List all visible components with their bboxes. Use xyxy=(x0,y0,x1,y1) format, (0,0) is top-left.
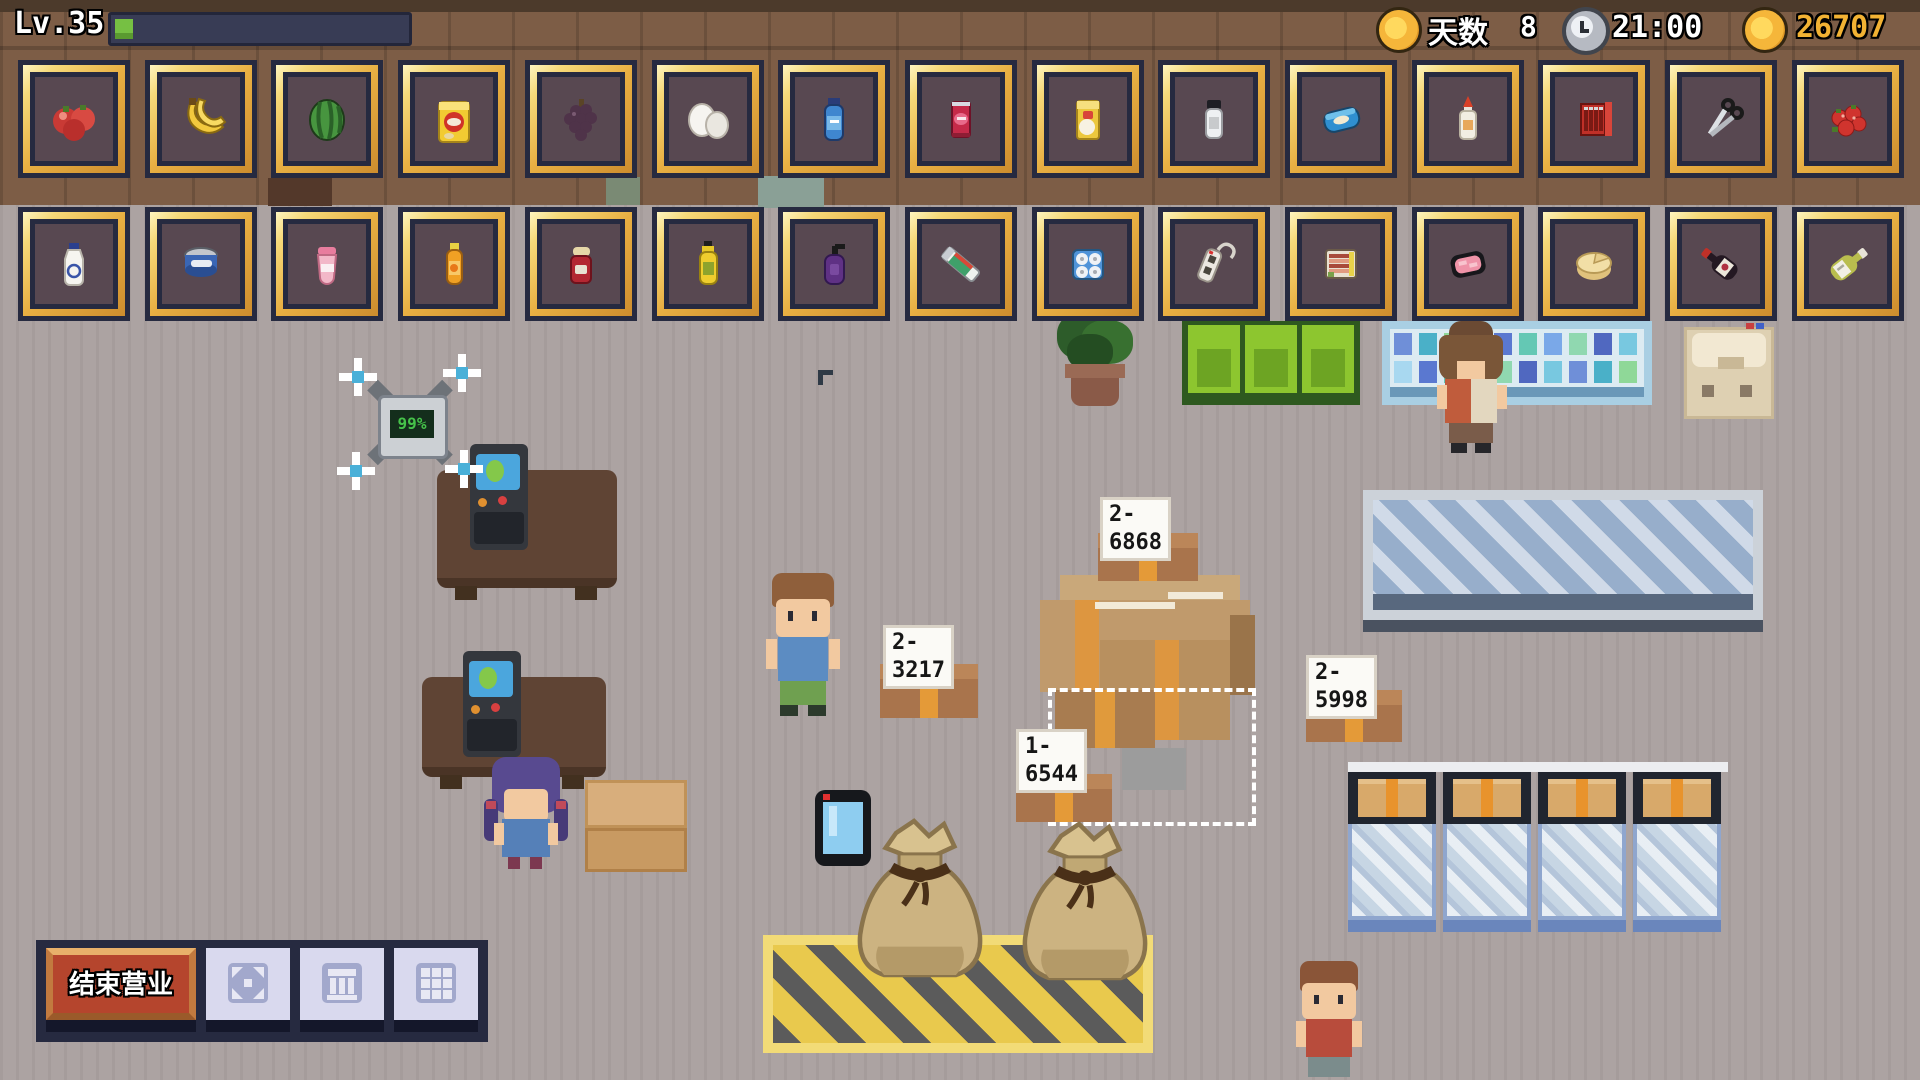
bacon-pack-icon xyxy=(1302,224,1380,304)
bank-button[interactable] xyxy=(300,948,384,1020)
phone-device[interactable] xyxy=(815,790,871,866)
potted-plant xyxy=(1051,312,1139,408)
slot-batteries[interactable] xyxy=(1538,60,1650,178)
xp-bar xyxy=(108,12,412,46)
toilet-paper-pack-icon xyxy=(1049,224,1127,304)
expand-button[interactable] xyxy=(206,948,290,1020)
shipment-box-label: 2-5998 xyxy=(1306,655,1377,719)
yogurt-cup-icon xyxy=(288,224,366,304)
money-bag[interactable] xyxy=(1010,818,1160,990)
cola-can-icon xyxy=(922,77,1000,161)
drone-propeller-icon xyxy=(445,450,483,488)
shipment-box-label: 2-3217 xyxy=(883,625,954,689)
wet-wipes-icon xyxy=(1302,77,1380,161)
display-counter-shadow xyxy=(1363,620,1763,632)
cash-register[interactable] xyxy=(455,645,529,763)
freezer-unit[interactable] xyxy=(1538,772,1626,932)
slot-cheese-wheel[interactable] xyxy=(1538,207,1650,321)
slot-bacon-pack[interactable] xyxy=(1285,207,1397,321)
milk-bottle-icon xyxy=(35,224,113,304)
power-strip-icon xyxy=(1175,224,1253,304)
batteries-icon xyxy=(1555,77,1633,161)
slot-shampoo[interactable] xyxy=(778,207,890,321)
cardboard-box[interactable] xyxy=(585,780,687,872)
freezer-unit[interactable] xyxy=(1348,772,1436,932)
slot-bananas[interactable] xyxy=(145,60,257,178)
slot-cola-can[interactable] xyxy=(905,60,1017,178)
money-value: 26707 xyxy=(1796,10,1886,45)
slot-toilet-paper-pack[interactable] xyxy=(1032,207,1144,321)
slot-white-wine-bottle[interactable] xyxy=(1792,207,1904,321)
freezer-unit[interactable] xyxy=(1633,772,1721,932)
scissors-icon xyxy=(1682,77,1760,161)
slot-wet-wipes[interactable] xyxy=(1285,60,1397,178)
shelf-decor xyxy=(606,177,640,205)
strawberries-icon xyxy=(1809,77,1887,161)
slot-jam-jar[interactable] xyxy=(525,207,637,321)
slot-power-strip[interactable] xyxy=(1158,207,1270,321)
slot-tomatoes[interactable] xyxy=(18,60,130,178)
freezer-unit[interactable] xyxy=(1443,772,1531,932)
action-toolbar: 结束营业 xyxy=(36,940,488,1042)
green-shelf[interactable] xyxy=(1182,321,1360,405)
shipment-box-label: 2-6868 xyxy=(1100,497,1171,561)
jam-jar-icon xyxy=(542,224,620,304)
slot-salt-shaker[interactable] xyxy=(1158,60,1270,178)
customer-boy xyxy=(766,573,840,725)
slot-yogurt-cup[interactable] xyxy=(271,207,383,321)
slot-orange-juice-bottle[interactable] xyxy=(398,207,510,321)
drone-propeller-icon xyxy=(337,452,375,490)
coin-icon xyxy=(1376,7,1422,53)
drone-propeller-icon xyxy=(339,358,377,396)
grid-icon xyxy=(410,957,462,1012)
game-viewport: 2-68682-32172-59981-6544 xyxy=(0,0,1920,1080)
drone-battery-screen: 99% xyxy=(390,410,434,438)
coin-icon xyxy=(1742,7,1788,53)
potato-chips-icon xyxy=(415,77,493,161)
cooking-oil-icon xyxy=(669,224,747,304)
freezer-top-strip xyxy=(1348,762,1728,772)
bank-icon xyxy=(316,957,368,1012)
cursor-icon xyxy=(818,370,834,386)
display-counter[interactable] xyxy=(1363,490,1763,620)
red-wine-bottle-icon xyxy=(1682,224,1760,304)
drone-propeller-icon xyxy=(443,354,481,392)
cheese-wheel-icon xyxy=(1555,224,1633,304)
time-value: 21:00 xyxy=(1612,10,1702,45)
eggs-icon xyxy=(669,77,747,161)
shampoo-icon xyxy=(795,224,873,304)
delivery-drone[interactable]: 99% xyxy=(345,362,475,486)
level-label: Lv.35 xyxy=(14,6,104,41)
slot-toothpaste[interactable] xyxy=(905,207,1017,321)
slot-strawberries[interactable] xyxy=(1792,60,1904,178)
day-value: 8 xyxy=(1520,10,1537,43)
grid-button[interactable] xyxy=(394,948,478,1020)
slot-scissors[interactable] xyxy=(1665,60,1777,178)
slot-red-wine-bottle[interactable] xyxy=(1665,207,1777,321)
bananas-icon xyxy=(162,77,240,161)
slot-flour-bag[interactable] xyxy=(1032,60,1144,178)
clock-icon xyxy=(1562,7,1610,55)
water-bottle-icon xyxy=(795,77,873,161)
wood-wall-seam xyxy=(0,46,1920,50)
slot-watermelon[interactable] xyxy=(271,60,383,178)
slot-eggs[interactable] xyxy=(652,60,764,178)
shipment-box-label: 1-6544 xyxy=(1016,729,1087,793)
slot-potato-chips[interactable] xyxy=(398,60,510,178)
slot-glue-bottle[interactable] xyxy=(1412,60,1524,178)
refrigerated-shelf[interactable] xyxy=(1382,321,1652,405)
white-wine-bottle-icon xyxy=(1809,224,1887,304)
tuna-can-icon xyxy=(162,224,240,304)
side-cabinet[interactable] xyxy=(1684,327,1774,419)
slot-milk-bottle[interactable] xyxy=(18,207,130,321)
glue-bottle-icon xyxy=(1429,77,1507,161)
end-business-button[interactable]: 结束营业 xyxy=(46,948,196,1020)
customer-woman xyxy=(1431,321,1511,457)
shelf-decor xyxy=(758,176,824,208)
customer-kid xyxy=(1292,961,1366,1079)
grapes-icon xyxy=(542,77,620,161)
watermelon-icon xyxy=(288,77,366,161)
meat-tray-icon xyxy=(1429,224,1507,304)
slot-meat-tray[interactable] xyxy=(1412,207,1524,321)
flour-bag-icon xyxy=(1049,77,1127,161)
expand-icon xyxy=(222,957,274,1012)
slot-cooking-oil[interactable] xyxy=(652,207,764,321)
slot-tuna-can[interactable] xyxy=(145,207,257,321)
slot-water-bottle[interactable] xyxy=(778,60,890,178)
customer-girl xyxy=(484,757,568,873)
salt-shaker-icon xyxy=(1175,77,1253,161)
toothpaste-icon xyxy=(922,224,1000,304)
slot-grapes[interactable] xyxy=(525,60,637,178)
shelf-decor xyxy=(268,178,332,206)
day-label: 天数 xyxy=(1428,8,1488,52)
orange-juice-bottle-icon xyxy=(415,224,493,304)
tomatoes-icon xyxy=(35,77,113,161)
